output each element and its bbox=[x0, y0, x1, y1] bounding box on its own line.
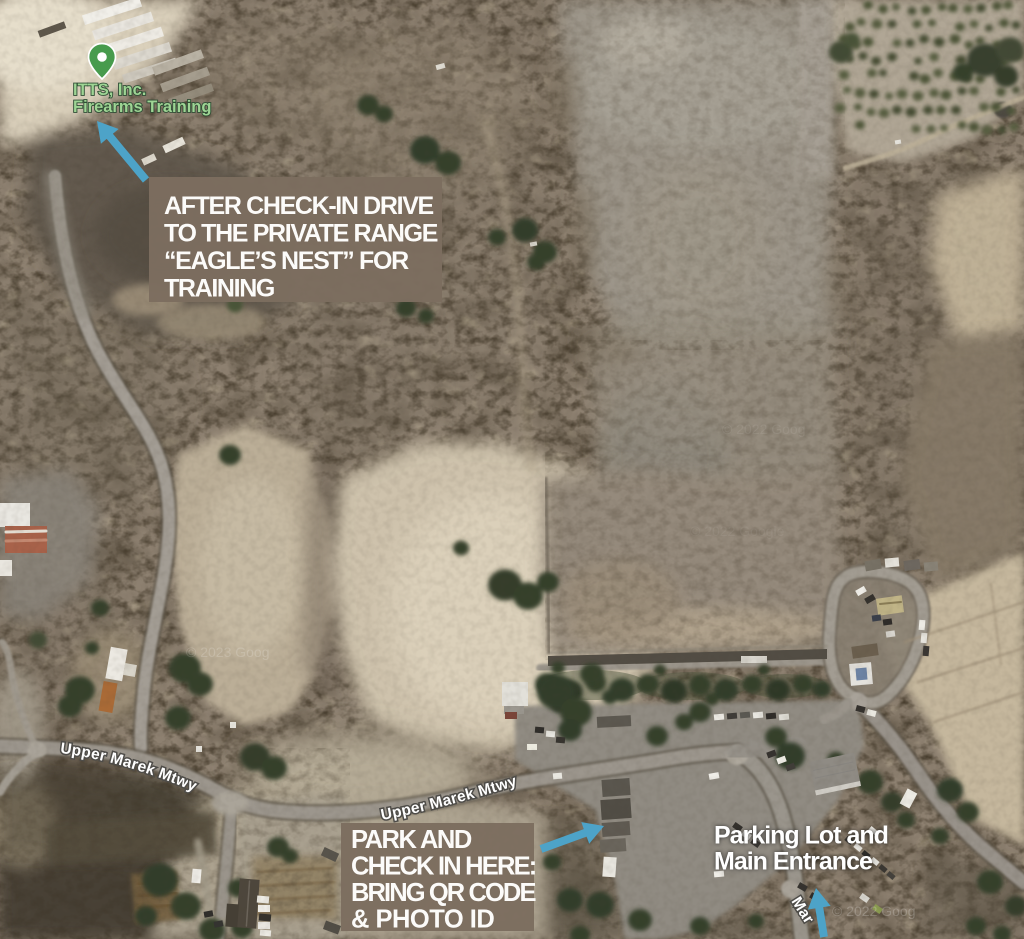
svg-text:CHECK IN HERE:: CHECK IN HERE: bbox=[351, 853, 536, 881]
svg-text:BRING QR CODE: BRING QR CODE bbox=[351, 879, 536, 907]
svg-text:AFTER CHECK-IN DRIVE: AFTER CHECK-IN DRIVE bbox=[164, 192, 434, 220]
svg-text:© 2022 Google: © 2022 Google bbox=[690, 523, 785, 539]
svg-text:© 2023 Goog: © 2023 Goog bbox=[186, 644, 270, 660]
svg-text:Firearms Training: Firearms Training bbox=[73, 98, 211, 116]
svg-text:© 2022 Goog: © 2022 Goog bbox=[722, 421, 806, 437]
svg-text:& PHOTO ID: & PHOTO ID bbox=[351, 906, 494, 934]
svg-text:PARK AND: PARK AND bbox=[351, 826, 472, 854]
svg-text:“EAGLE’S NEST” FOR: “EAGLE’S NEST” FOR bbox=[164, 247, 409, 275]
svg-text:TO THE PRIVATE RANGE: TO THE PRIVATE RANGE bbox=[164, 220, 438, 248]
svg-text:Main Entrance: Main Entrance bbox=[714, 848, 873, 876]
svg-text:ITTS, Inc.: ITTS, Inc. bbox=[73, 81, 146, 99]
svg-text:TRAINING: TRAINING bbox=[164, 275, 274, 303]
svg-text:© 2022 Goog: © 2022 Goog bbox=[832, 903, 916, 919]
svg-text:Parking Lot and: Parking Lot and bbox=[714, 822, 888, 850]
